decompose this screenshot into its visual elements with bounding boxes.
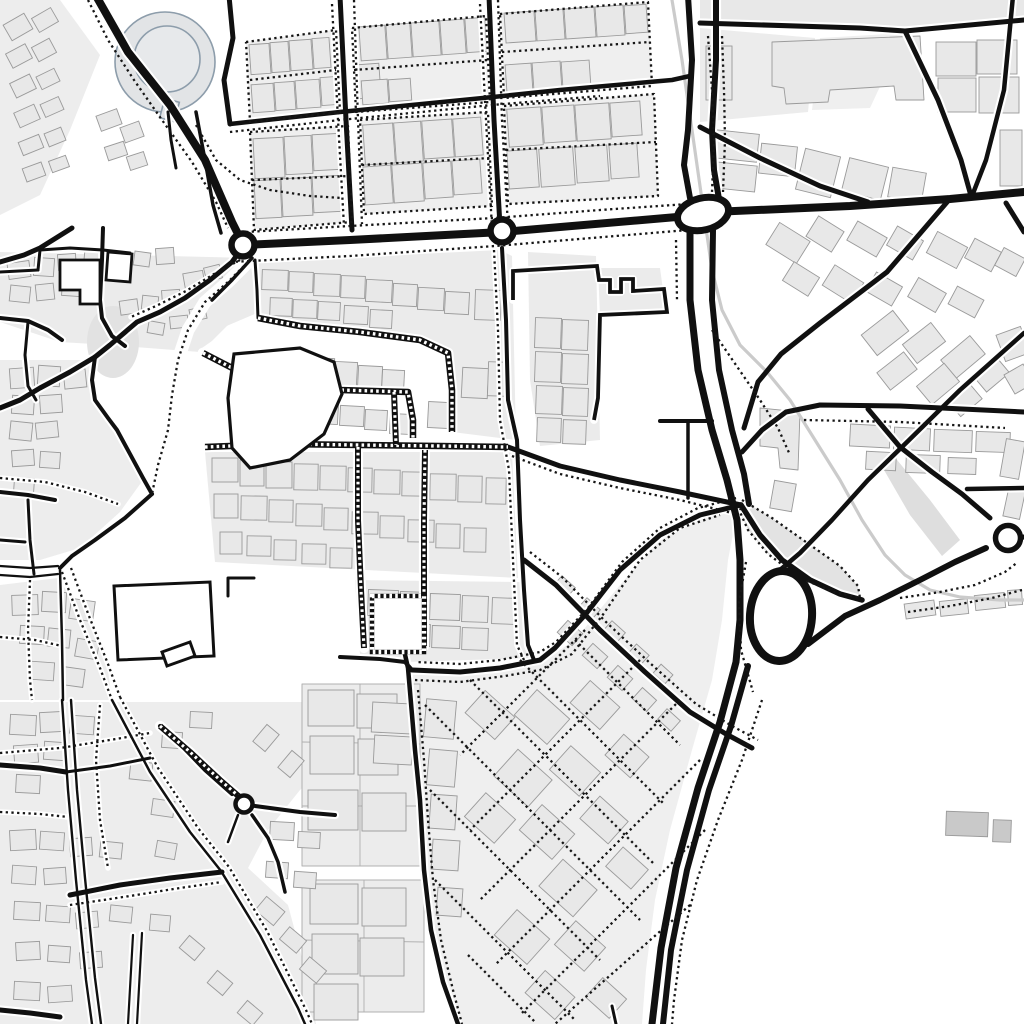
building — [266, 462, 292, 488]
building — [934, 429, 973, 452]
building — [440, 19, 466, 55]
building — [431, 839, 460, 871]
building — [624, 4, 648, 33]
road — [38, 250, 40, 270]
building — [320, 466, 346, 490]
building — [362, 888, 406, 926]
palace-block — [114, 582, 214, 660]
building — [536, 386, 563, 415]
building — [289, 272, 314, 293]
building — [270, 821, 295, 840]
building — [575, 145, 609, 183]
building — [360, 938, 404, 976]
building-dark — [993, 820, 1012, 843]
building — [423, 699, 456, 739]
building — [14, 901, 41, 920]
building — [294, 464, 318, 490]
building — [564, 7, 596, 39]
roundabout-small-south — [236, 796, 253, 813]
building — [296, 504, 322, 526]
building — [308, 690, 354, 726]
building — [214, 494, 238, 518]
building — [363, 165, 394, 205]
building — [535, 9, 565, 41]
building — [411, 21, 441, 57]
building — [344, 305, 369, 324]
building — [370, 309, 393, 328]
building — [452, 159, 482, 195]
building — [274, 540, 296, 560]
building — [293, 871, 316, 888]
building — [430, 474, 456, 500]
building — [45, 905, 70, 923]
building — [534, 352, 561, 383]
building — [394, 121, 424, 163]
building — [563, 420, 587, 445]
ladder-block — [372, 596, 424, 652]
building — [190, 711, 213, 728]
building — [249, 43, 271, 74]
building — [436, 887, 463, 917]
building — [386, 23, 412, 59]
building — [380, 516, 404, 538]
building — [9, 714, 36, 735]
building — [16, 941, 41, 960]
building — [269, 500, 293, 522]
building — [392, 163, 425, 203]
building — [155, 247, 174, 264]
building — [458, 476, 482, 502]
building — [453, 117, 484, 157]
building — [39, 451, 60, 468]
building — [241, 496, 267, 520]
building — [504, 11, 536, 43]
roundabout-large-oval — [747, 569, 815, 663]
building — [374, 470, 400, 494]
building — [770, 480, 797, 511]
building — [539, 147, 576, 187]
building — [302, 544, 326, 564]
building — [371, 702, 413, 734]
building — [534, 318, 561, 349]
building — [284, 135, 313, 174]
building — [298, 831, 321, 848]
building — [251, 83, 275, 112]
building — [324, 508, 348, 530]
building — [486, 478, 506, 504]
building — [16, 774, 41, 793]
courtyard-block — [106, 252, 132, 282]
building — [388, 78, 411, 101]
building — [948, 458, 977, 475]
roundabout-center — [491, 220, 514, 243]
building — [9, 829, 36, 850]
building — [936, 42, 976, 76]
building — [417, 287, 444, 310]
building — [318, 301, 341, 320]
building-dark — [946, 811, 989, 836]
building — [561, 320, 588, 351]
building — [362, 793, 406, 831]
building — [133, 251, 151, 267]
building — [155, 840, 177, 859]
building — [330, 548, 352, 568]
building — [270, 298, 293, 317]
building — [1000, 130, 1022, 186]
building — [427, 401, 448, 428]
building — [507, 107, 544, 147]
building — [464, 528, 486, 552]
building — [339, 405, 364, 426]
building — [147, 321, 165, 336]
building — [247, 536, 271, 556]
building — [610, 101, 642, 137]
building — [373, 735, 412, 765]
building — [422, 119, 455, 159]
building — [274, 81, 296, 110]
building — [281, 177, 313, 217]
building — [561, 354, 588, 385]
building — [423, 161, 453, 199]
road — [0, 540, 25, 542]
building — [12, 595, 39, 616]
building — [9, 421, 33, 441]
building — [462, 596, 489, 623]
building — [595, 5, 625, 37]
road — [967, 488, 1024, 489]
building — [39, 394, 62, 413]
building — [289, 39, 313, 70]
building — [542, 105, 576, 143]
building — [270, 41, 290, 72]
building — [507, 149, 540, 189]
building — [444, 291, 469, 314]
building — [35, 421, 59, 439]
building — [14, 981, 41, 1000]
building — [310, 884, 358, 924]
building — [220, 532, 242, 554]
building — [432, 626, 461, 649]
building — [314, 274, 341, 297]
building — [9, 285, 31, 303]
building — [361, 79, 389, 105]
building — [436, 524, 460, 548]
building — [212, 458, 238, 482]
building — [363, 123, 396, 165]
building — [609, 143, 639, 179]
building — [109, 905, 133, 923]
roundabout-east — [996, 526, 1021, 551]
building — [262, 270, 289, 291]
building — [314, 984, 358, 1020]
building — [426, 749, 457, 787]
building — [43, 867, 66, 884]
building — [312, 37, 331, 68]
building — [11, 449, 34, 466]
building — [429, 794, 457, 830]
building — [254, 179, 282, 218]
roundabout-west — [232, 234, 255, 257]
map-viewport[interactable] — [0, 0, 1024, 1024]
building — [392, 283, 417, 306]
building — [29, 661, 54, 681]
building — [505, 63, 533, 93]
building — [563, 388, 589, 417]
building — [47, 985, 72, 1003]
building — [341, 276, 366, 299]
building — [149, 914, 170, 932]
building — [537, 418, 562, 443]
building — [364, 409, 387, 430]
city-map-canvas[interactable] — [0, 0, 1024, 1024]
building — [35, 283, 55, 301]
building — [295, 79, 321, 109]
building — [47, 945, 70, 962]
building — [39, 831, 64, 851]
building — [575, 103, 611, 141]
building — [430, 593, 461, 620]
building — [293, 300, 318, 319]
building — [461, 367, 489, 398]
building — [11, 865, 36, 885]
building — [365, 279, 392, 302]
road — [0, 270, 38, 272]
building — [462, 628, 489, 651]
building — [310, 736, 354, 774]
building — [253, 137, 285, 179]
building — [359, 25, 387, 61]
